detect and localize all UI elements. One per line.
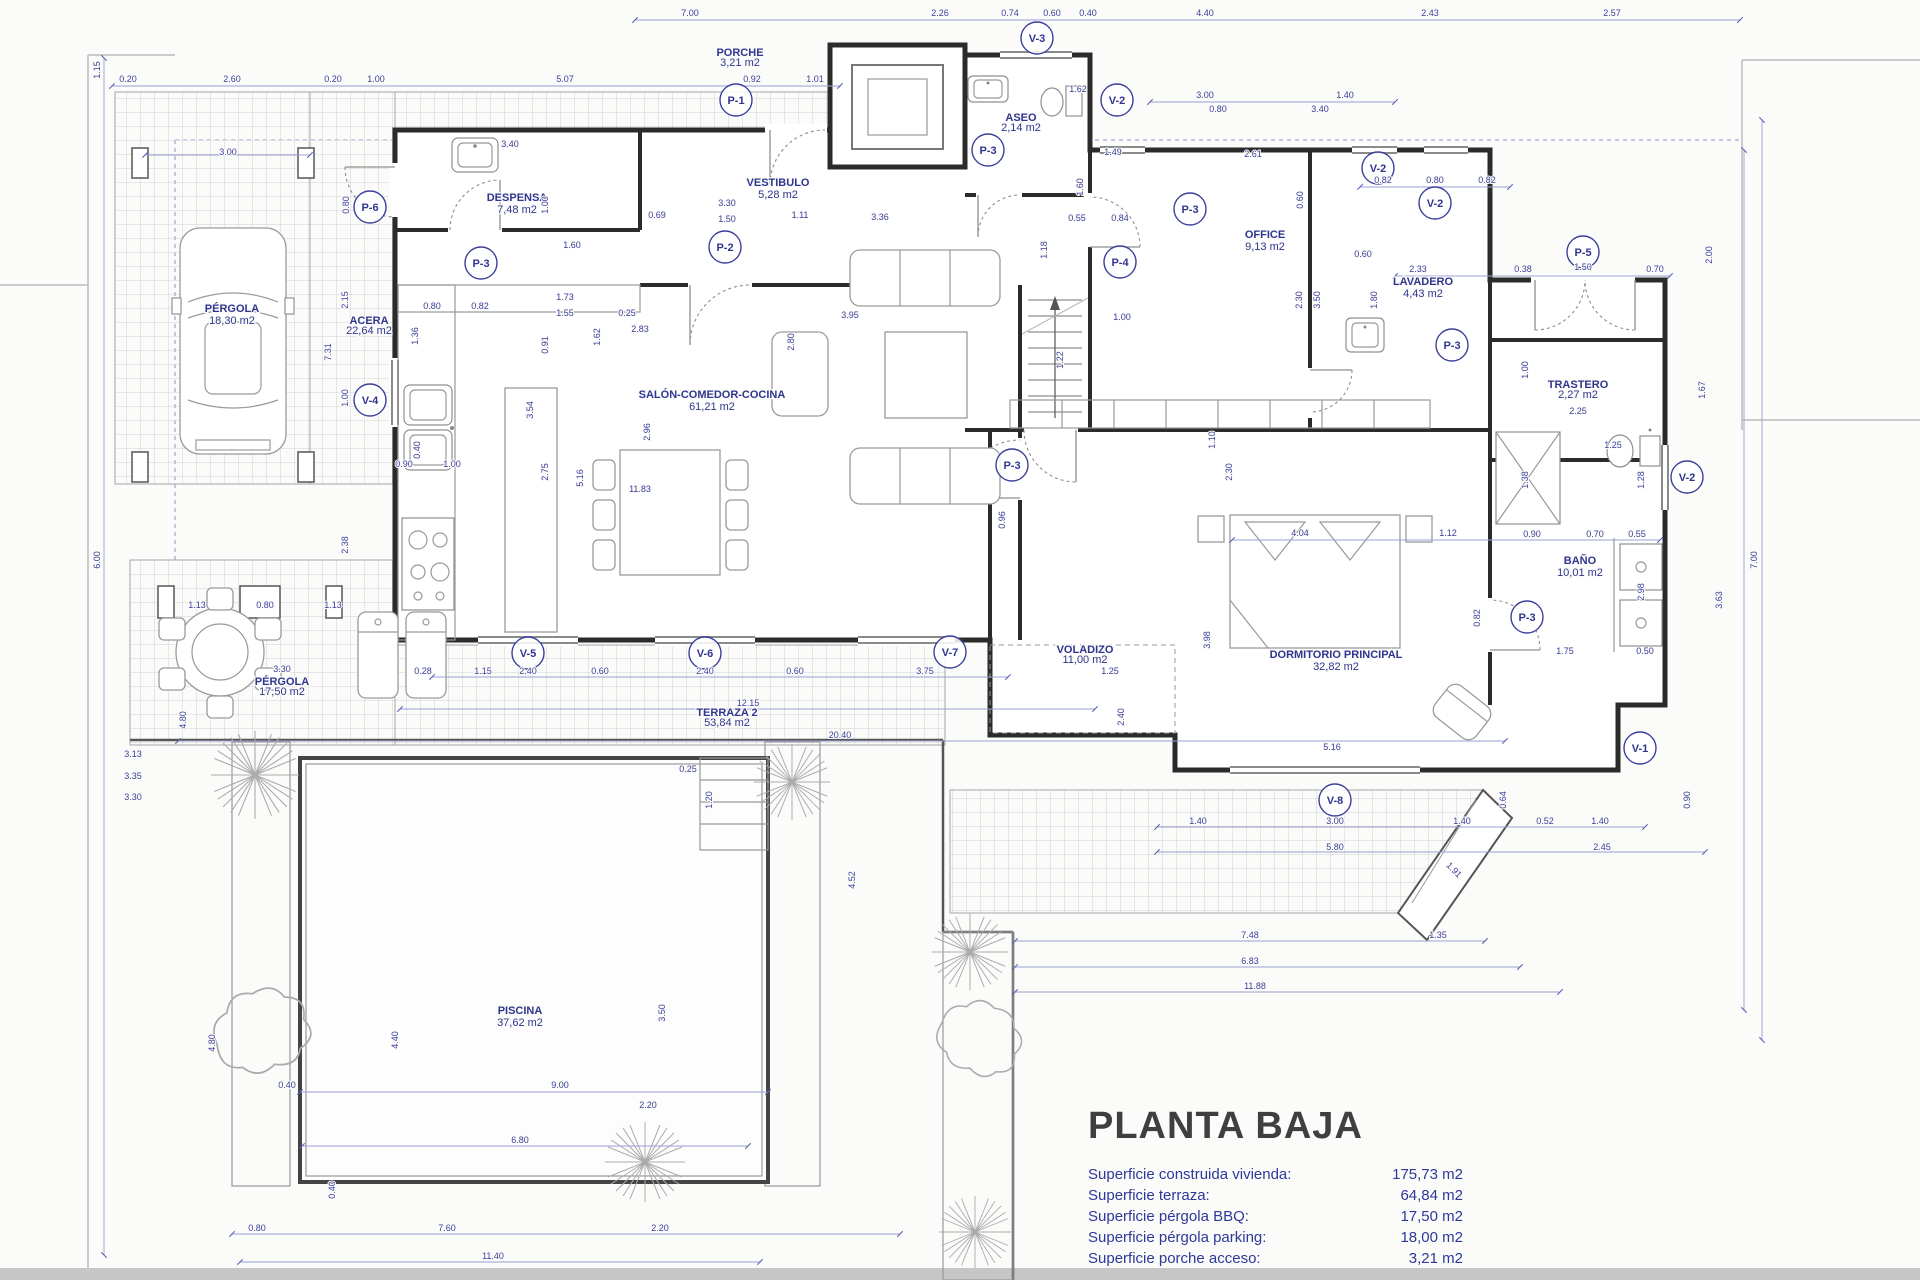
door-tag-p-4: P-4 (1104, 246, 1136, 278)
dimension-text: 3.95 (841, 310, 859, 320)
dimension-text: 1.00 (367, 74, 385, 84)
dimension-text: 0.64 (1498, 791, 1508, 809)
svg-text:V-3: V-3 (1029, 33, 1046, 45)
window-tag-v-8: V-8 (1319, 784, 1351, 816)
dimension-text: 4.40 (1196, 8, 1214, 18)
dimension-text: 2.40 (519, 666, 537, 676)
svg-text:P-3: P-3 (1181, 204, 1198, 216)
dimension-text: 0.82 (1472, 609, 1482, 627)
door-tag-p-6: P-6 (354, 191, 386, 223)
dimension-text: 7.00 (1749, 551, 1759, 569)
dimension-text: 5.16 (1323, 742, 1341, 752)
dimension-text: 1.40 (1336, 90, 1354, 100)
window-tag-v-1: V-1 (1624, 732, 1656, 764)
dimension-text: 3.13 (124, 749, 142, 759)
dimension-text: 2.60 (223, 74, 241, 84)
dimension-text: 2.45 (1593, 842, 1611, 852)
room-label-aseo: ASEO2,14 m2 (1001, 112, 1041, 134)
planter-left (232, 742, 290, 1186)
tiled-area-terrace-rear (950, 790, 1483, 913)
dimension-text: 0.90 (395, 459, 413, 469)
dimension-text: 1.11 (792, 210, 809, 220)
dimension-text: 1.67 (1697, 381, 1707, 399)
surface-value: 18,00 m2 (1353, 1227, 1463, 1248)
dimension-text: 2.00 (1704, 246, 1714, 264)
svg-text:P-3: P-3 (1518, 612, 1535, 624)
dimension-text: 9.00 (551, 1080, 569, 1090)
dimension-text: 6.00 (92, 551, 102, 569)
room-label-bano: BAÑO10,01 m2 (1557, 554, 1603, 579)
planter-right (765, 742, 820, 1186)
dimension-text: 1.18 (1039, 241, 1049, 259)
dimension-text: 2.61 (1244, 149, 1262, 159)
dimension-text: 1.00 (540, 196, 550, 214)
surface-row: Superficie porche acceso:3,21 m2 (1088, 1248, 1518, 1269)
dimension-text: 0.40 (1079, 8, 1097, 18)
pool-zone (130, 731, 1037, 1280)
dimension-text: 1.62 (592, 328, 602, 346)
dimension-text: 3.54 (525, 401, 535, 419)
floor-plan-drawing: PORCHE3,21 m2VESTIBULO5,28 m2DESPENSA7,4… (0, 0, 1920, 1280)
svg-text:V-2: V-2 (1370, 163, 1387, 175)
dimension-text: 11.40 (482, 1251, 504, 1261)
dimension-text: 1.60 (1075, 178, 1085, 196)
window-v4 (389, 358, 401, 427)
dimension-text: 0.60 (591, 666, 609, 676)
tree-icon (932, 914, 1008, 990)
dimension-text: 11.83 (629, 484, 651, 494)
door-tag-p-3: P-3 (465, 247, 497, 279)
dimension-text: 3.35 (124, 771, 142, 781)
dimension-text: 1.35 (1429, 930, 1447, 940)
dimension-text: 1.40 (1453, 816, 1471, 826)
window-tag-v-2: V-2 (1671, 461, 1703, 493)
dimension-text: 2.98 (1636, 583, 1646, 601)
dimension-text: 3.36 (871, 212, 889, 222)
svg-text:P-3: P-3 (472, 258, 489, 270)
dimension-text: 0.80 (248, 1223, 266, 1233)
surface-label: Superficie pérgola parking: (1088, 1227, 1353, 1248)
dimension-text: 4.04 (1291, 528, 1309, 538)
surface-value: 3,21 m2 (1353, 1248, 1463, 1269)
dimension-text: 1.36 (410, 327, 420, 345)
svg-text:V-4: V-4 (362, 395, 379, 407)
dimension-text: 1.00 (443, 459, 461, 469)
svg-text:P-1: P-1 (727, 95, 744, 107)
dimension-text: 0.70 (1646, 264, 1664, 274)
dimension-text: 1.13 (188, 600, 206, 610)
dimension-text: 0.90 (1682, 791, 1692, 809)
window-tag-v-3: V-3 (1021, 22, 1053, 54)
tree-icon (211, 731, 299, 819)
dimension-text: 3.30 (124, 792, 142, 802)
svg-text:P-3: P-3 (1003, 460, 1020, 472)
pool (300, 758, 768, 1182)
dimension-text: 0.92 (743, 74, 761, 84)
dimension-text: 0.40 (412, 441, 422, 459)
surface-value: 175,73 m2 (1353, 1164, 1463, 1185)
dimension-text: 0.60 (786, 666, 804, 676)
tree-icon (605, 1122, 685, 1202)
dimension-text: 1.20 (704, 791, 714, 809)
dimension-text: 0.82 (1374, 175, 1392, 185)
dimension-text: 0.84 (1111, 213, 1129, 223)
kitchen-island (505, 388, 557, 632)
dimension-text: 0.50 (1636, 646, 1654, 656)
door-tag-p-2: P-2 (709, 231, 741, 263)
room-label-piscina: PISCINA37,62 m2 (497, 1005, 543, 1029)
coffee-table (885, 332, 967, 418)
door-tag-p-1: P-1 (720, 84, 752, 116)
dimension-text: 2.20 (639, 1100, 657, 1110)
dimension-text: 1.10 (1207, 431, 1217, 449)
svg-text:P-2: P-2 (716, 242, 733, 254)
dimension-text: 11.88 (1244, 981, 1266, 991)
dimension-text: 2.96 (642, 423, 652, 441)
dimension-text: 0.40 (327, 1181, 337, 1199)
dimension-text: 3.98 (1202, 631, 1212, 649)
tree-icon (754, 744, 830, 820)
dimension-text: 0.82 (471, 301, 489, 311)
dimension-text: 1.60 (563, 240, 581, 250)
dimension-text: 3.75 (916, 666, 934, 676)
dimension-text: 1.01 (806, 74, 824, 84)
dimension-text: 3.00 (219, 147, 237, 157)
svg-text:P-4: P-4 (1111, 257, 1129, 269)
dimension-text: 1.12 (1439, 528, 1457, 538)
dimension-text: 0.90 (1523, 529, 1541, 539)
dimension-text: 0.25 (618, 308, 636, 318)
tiled-area-acera (310, 92, 395, 484)
dimension-text: 12.15 (737, 698, 760, 708)
dimension-text: 1.50 (1574, 262, 1592, 272)
dimension-text: 1.25 (1101, 666, 1119, 676)
svg-text:V-6: V-6 (697, 648, 714, 660)
dimension-text: 5.07 (556, 74, 574, 84)
dimension-text: 6.80 (511, 1135, 529, 1145)
surface-row: Superficie terraza:64,84 m2 (1088, 1185, 1518, 1206)
door-tag-p-3: P-3 (1174, 193, 1206, 225)
dimension-text: 2.25 (1569, 406, 1587, 416)
dimension-text: 1.15 (474, 666, 492, 676)
dimension-text: 1.00 (1520, 361, 1530, 379)
dimension-text: 1.40 (1189, 816, 1207, 826)
dimension-text: 3.30 (718, 198, 736, 208)
dimension-text: 0.69 (648, 210, 666, 220)
dimension-text: 2.43 (1421, 8, 1439, 18)
room-label-terraza2: TERRAZA 253,84 m2 (696, 707, 757, 729)
surface-table: Superficie construida vivienda:175,73 m2… (1088, 1164, 1518, 1269)
room-label-office: OFFICE9,13 m2 (1245, 229, 1285, 253)
dimension-text: 1.25 (1604, 440, 1622, 450)
dimension-text: 3.00 (1326, 816, 1344, 826)
room-label-pergola-parking: PÉRGOLA18,30 m2 (205, 302, 259, 327)
dimension-text: 2.20 (651, 1223, 669, 1233)
svg-text:V-8: V-8 (1327, 795, 1344, 807)
svg-text:P-5: P-5 (1574, 247, 1591, 259)
svg-text:V-2: V-2 (1679, 472, 1696, 484)
bed (1198, 515, 1432, 648)
window-tag-v-5: V-5 (512, 637, 544, 669)
surface-value: 17,50 m2 (1353, 1206, 1463, 1227)
dimension-text: 0.52 (1536, 816, 1554, 826)
dimension-text: 0.74 (1001, 8, 1019, 18)
dimension-text: 2.15 (340, 291, 350, 309)
dimension-text: 0.55 (1628, 529, 1646, 539)
dimension-text: 5.80 (1326, 842, 1344, 852)
dimension-text: 2.26 (931, 8, 949, 18)
svg-text:V-5: V-5 (520, 648, 537, 660)
dimension-text: 4.52 (847, 871, 857, 889)
dimension-text: 3.00 (1196, 90, 1214, 100)
room-label-porche: PORCHE3,21 m2 (716, 47, 763, 69)
window-tag-v-6: V-6 (689, 637, 721, 669)
svg-text:V-1: V-1 (1632, 743, 1649, 755)
tree-icon (214, 988, 311, 1073)
dimension-text: 0.55 (1068, 213, 1086, 223)
tree-icon (939, 1196, 1011, 1268)
room-label-acera: ACERA22,64 m2 (346, 315, 392, 337)
dimension-text: 2.75 (540, 463, 550, 481)
window-tag-v-2: V-2 (1101, 84, 1133, 116)
kitchen-hob (402, 518, 454, 610)
svg-text:P-3: P-3 (979, 145, 996, 157)
dimension-text: 1.00 (1113, 312, 1131, 322)
dimension-text: 7.00 (681, 8, 699, 18)
dimension-text: 5.16 (575, 469, 585, 487)
dimension-text: 0.80 (423, 301, 441, 311)
dimension-text: 1.50 (718, 214, 736, 224)
dimension-text: 0.60 (1295, 191, 1305, 209)
door-tag-p-3: P-3 (996, 449, 1028, 481)
dimension-text: 0.20 (119, 74, 137, 84)
dimension-text: 3.50 (657, 1004, 667, 1022)
dimension-text: 3.40 (1311, 104, 1329, 114)
dimension-text: 0.91 (540, 336, 550, 354)
surface-label: Superficie pérgola BBQ: (1088, 1206, 1353, 1227)
car (172, 228, 294, 454)
svg-text:V-2: V-2 (1427, 198, 1444, 210)
dimension-text: 4.40 (390, 1031, 400, 1049)
dimension-text: 1.13 (324, 600, 342, 610)
surface-label: Superficie construida vivienda: (1088, 1164, 1353, 1185)
window-tag-v-7: V-7 (934, 636, 966, 668)
window-v2-c (1424, 144, 1468, 156)
dimension-text: 1.28 (1636, 471, 1646, 489)
dimension-text: 0.80 (341, 196, 351, 214)
dimension-text: 0.96 (997, 511, 1007, 529)
dimension-text: 1.49 (1104, 147, 1122, 157)
room-label-pergola-bbq: PÉRGOLA17,50 m2 (255, 675, 309, 698)
window-tag-v-2: V-2 (1419, 187, 1451, 219)
door-tag-p-3: P-3 (1511, 601, 1543, 633)
surface-row: Superficie construida vivienda:175,73 m2 (1088, 1164, 1518, 1185)
title-block: PLANTA BAJA Superficie construida vivien… (1088, 1105, 1518, 1269)
dimension-text: 4.80 (207, 1034, 217, 1052)
dimension-text: 1.40 (1591, 816, 1609, 826)
tiled-area-terraza (395, 645, 945, 745)
dimension-text: 3.30 (273, 664, 291, 674)
plan-title: PLANTA BAJA (1088, 1105, 1518, 1148)
dimension-text: 0.60 (1354, 249, 1372, 259)
dimension-text: 7.48 (1241, 930, 1259, 940)
dimension-text: 1.73 (556, 292, 574, 302)
dimension-text: 2.83 (631, 324, 649, 334)
dimension-text: 0.60 (1043, 8, 1061, 18)
window-v2-d (1659, 445, 1671, 510)
dimension-text: 0.80 (1426, 175, 1444, 185)
window-v8 (1230, 764, 1420, 776)
dimension-text: 0.20 (324, 74, 342, 84)
dimension-text: 0.70 (1586, 529, 1604, 539)
dimension-text: 0.40 (278, 1080, 296, 1090)
dimension-text: 1.55 (556, 308, 574, 318)
dimension-text: 2.40 (1116, 708, 1126, 726)
dimension-text: 0.25 (679, 764, 697, 774)
armchair (772, 332, 828, 416)
dimension-text: 20.40 (829, 730, 852, 740)
door-tag-p-3: P-3 (972, 134, 1004, 166)
dimension-text: 4.80 (178, 711, 188, 729)
tree-icon (924, 983, 1037, 1094)
dimension-text: 2.33 (1409, 264, 1427, 274)
pantry-sink (452, 138, 498, 172)
dimension-text: 7.60 (438, 1223, 456, 1233)
dimension-text: 3.50 (1312, 291, 1322, 309)
dimension-text: 0.38 (1514, 264, 1532, 274)
dimension-text: 1.00 (340, 389, 350, 407)
surface-value: 64,84 m2 (1353, 1185, 1463, 1206)
window-tag-v-4: V-4 (354, 384, 386, 416)
door-tag-p-3: P-3 (1436, 329, 1468, 361)
dimension-text: 0.28 (414, 666, 432, 676)
svg-text:V-7: V-7 (942, 647, 959, 659)
dimension-text: 0.80 (1209, 104, 1227, 114)
dimension-text: 3.40 (501, 139, 519, 149)
dimension-text: 2.57 (1603, 8, 1621, 18)
dimension-text: 1.80 (1369, 291, 1379, 309)
dimension-text: 0.80 (256, 600, 274, 610)
dimension-text: 0.82 (1478, 175, 1496, 185)
surface-label: Superficie terraza: (1088, 1185, 1353, 1206)
svg-text:P-6: P-6 (361, 202, 378, 214)
dimension-text: 7.31 (323, 343, 333, 361)
dimension-text: 1.38 (1520, 471, 1530, 489)
surface-row: Superficie pérgola parking:18,00 m2 (1088, 1227, 1518, 1248)
dimension-text: 2.38 (340, 536, 350, 554)
laundry-fixtures (1346, 318, 1384, 352)
dimension-text: 2.40 (696, 666, 714, 676)
svg-text:P-3: P-3 (1443, 340, 1460, 352)
dimension-text: 2.80 (786, 333, 796, 351)
room-label-voladizo: VOLADIZO11,00 m2 (1057, 644, 1114, 666)
dimension-text: 1.75 (1556, 646, 1574, 656)
dimension-text: 1.22 (1055, 351, 1065, 369)
dimension-text: 2.30 (1224, 463, 1234, 481)
surface-label: Superficie porche acceso: (1088, 1248, 1353, 1269)
svg-text:V-2: V-2 (1109, 95, 1126, 107)
dimension-text: 1.15 (92, 61, 102, 79)
porch-structure (830, 45, 965, 167)
surface-row: Superficie pérgola BBQ:17,50 m2 (1088, 1206, 1518, 1227)
floor-plan-canvas: PORCHE3,21 m2VESTIBULO5,28 m2DESPENSA7,4… (0, 0, 1920, 1280)
dimension-text: 3.63 (1714, 591, 1724, 609)
dimension-text: 6.83 (1241, 956, 1259, 966)
dimension-text: 1.62 (1069, 84, 1087, 94)
dimension-text: 2.30 (1294, 291, 1304, 309)
